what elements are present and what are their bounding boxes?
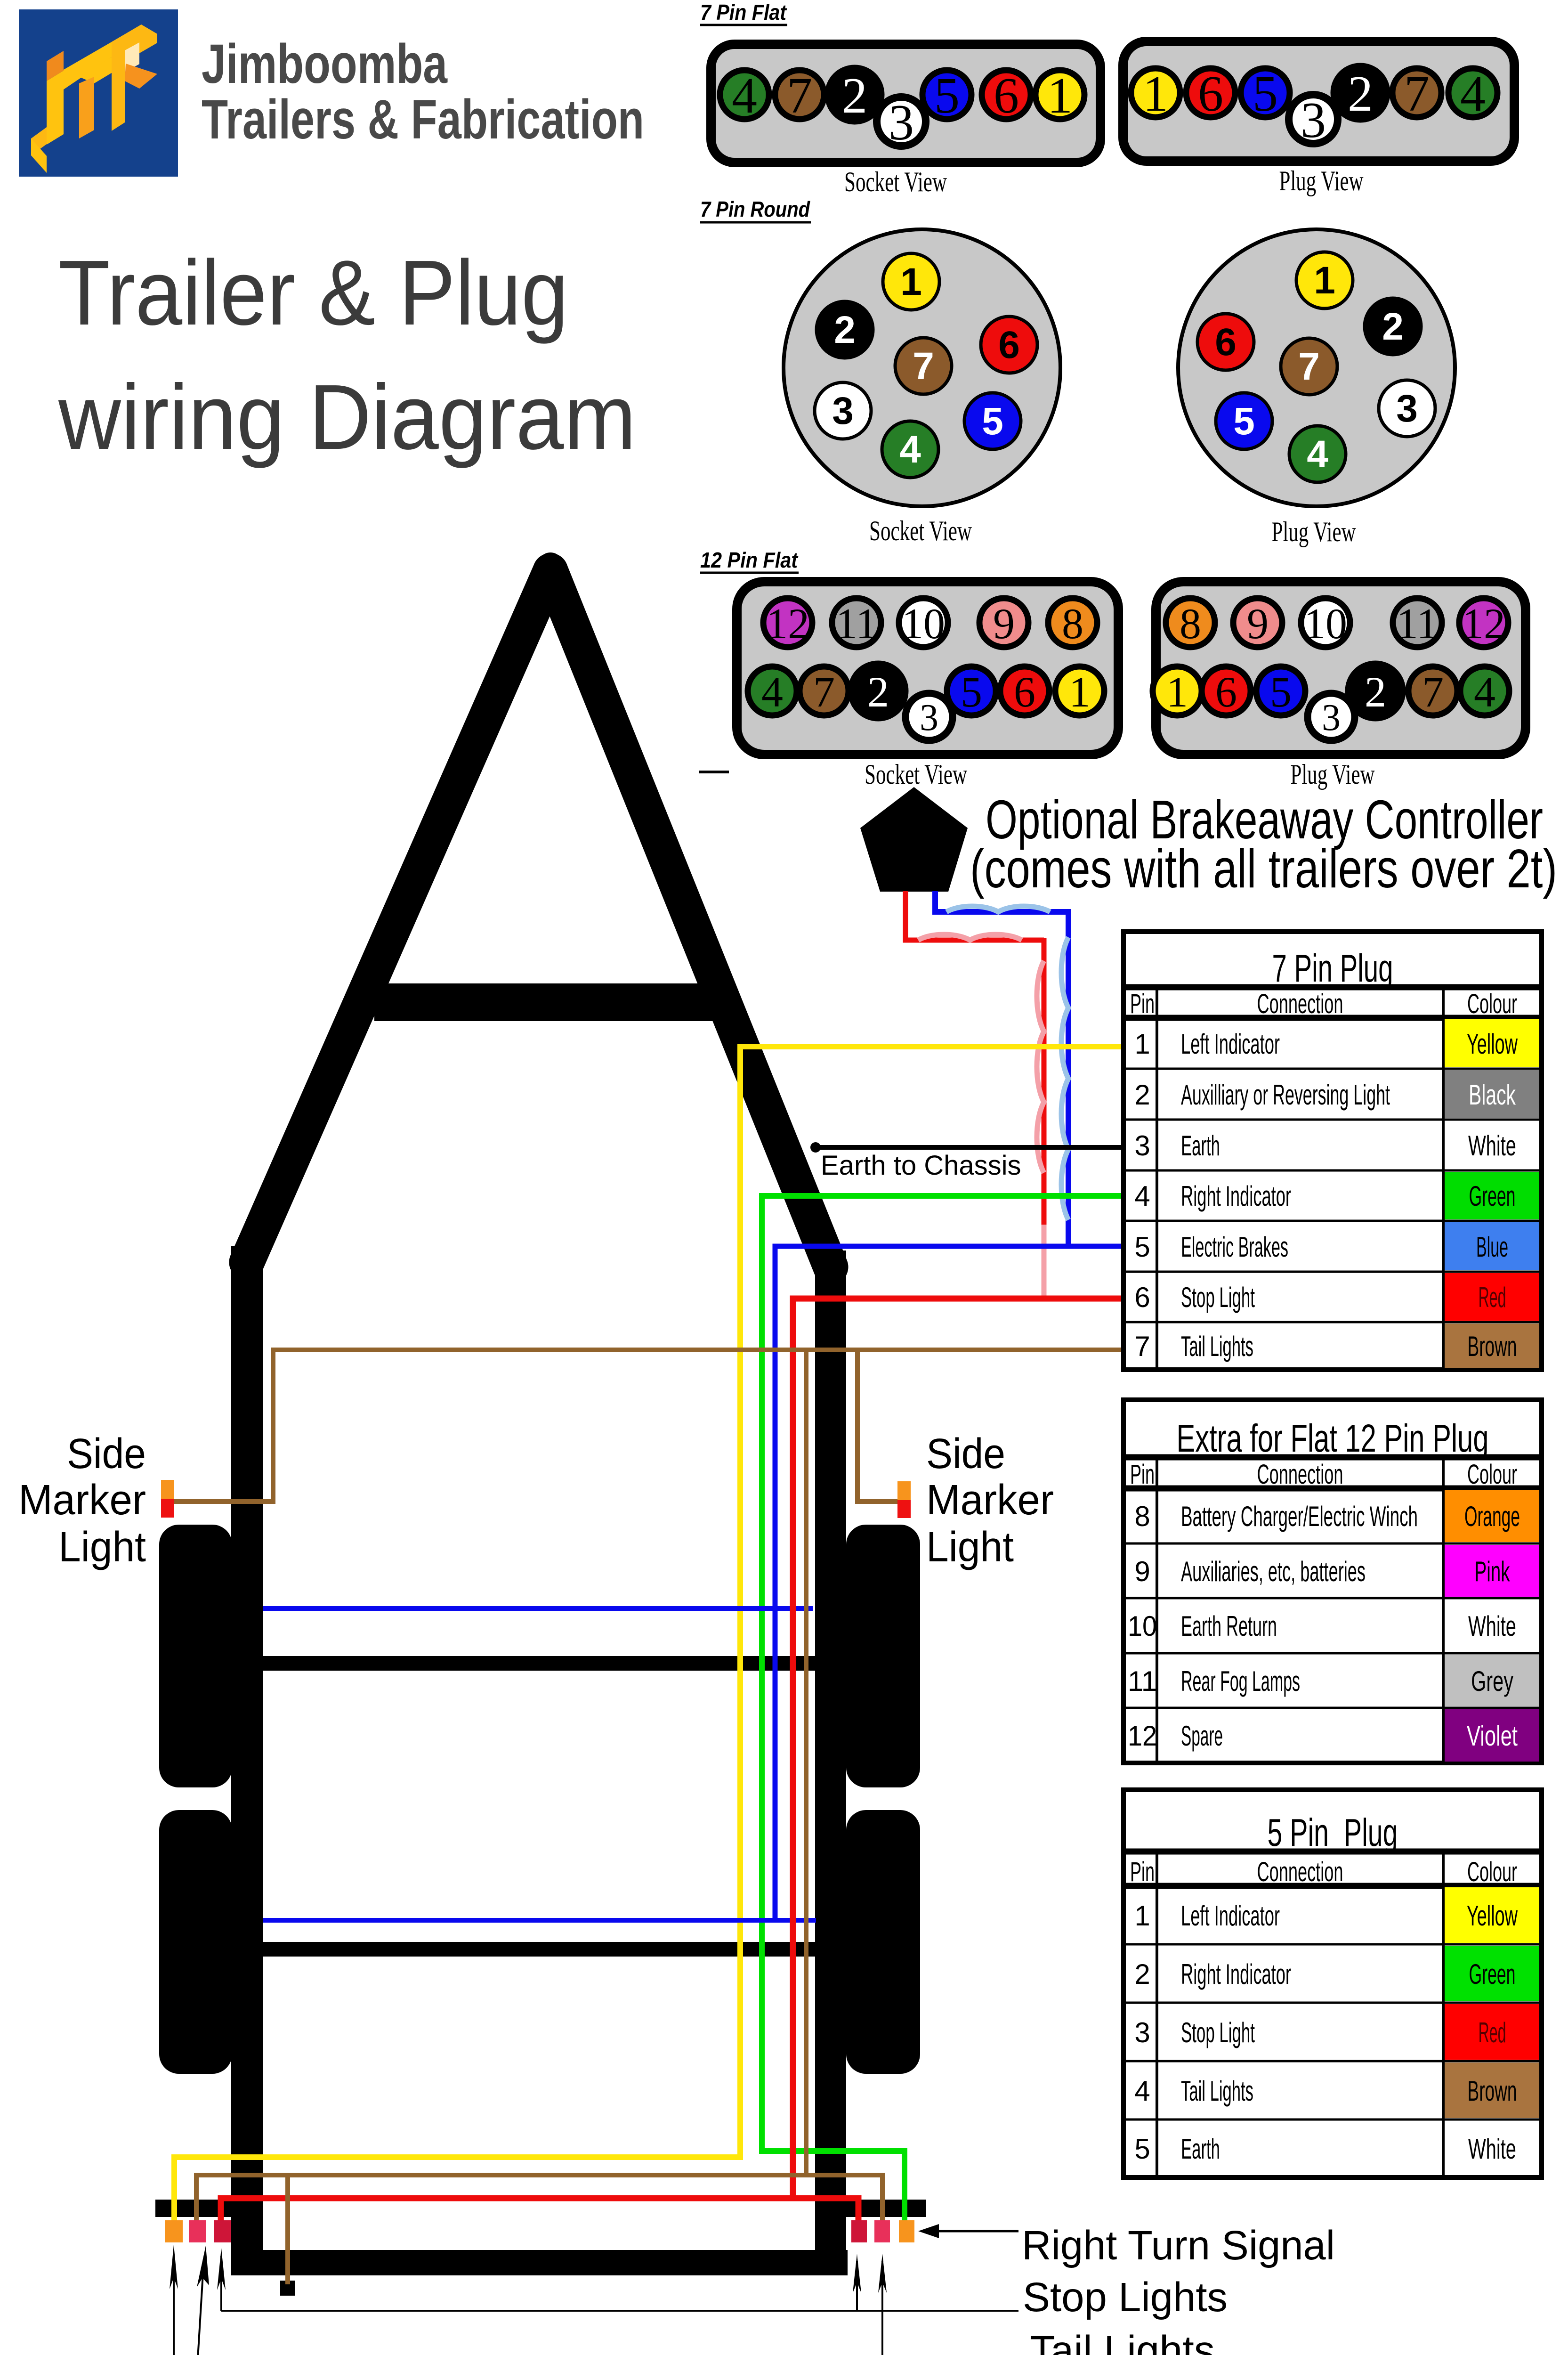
svg-text:3: 3 xyxy=(920,697,938,739)
svg-text:11: 11 xyxy=(836,600,878,648)
svg-text:1: 1 xyxy=(1134,1900,1150,1932)
svg-text:7: 7 xyxy=(1404,66,1430,122)
svg-text:5: 5 xyxy=(1233,400,1255,443)
svg-text:4: 4 xyxy=(1134,2075,1150,2107)
svg-text:2: 2 xyxy=(1365,668,1386,716)
svg-text:10: 10 xyxy=(902,600,945,648)
svg-text:Trailers & Fabrication: Trailers & Fabrication xyxy=(202,89,644,151)
svg-text:12: 12 xyxy=(1462,600,1505,648)
svg-text:11: 11 xyxy=(1128,1665,1157,1697)
svg-text:9: 9 xyxy=(1247,600,1269,648)
svg-text:Marker: Marker xyxy=(926,1477,1054,1524)
svg-text:Brown: Brown xyxy=(1468,1331,1517,1362)
svg-text:12: 12 xyxy=(766,600,809,648)
svg-text:2: 2 xyxy=(867,668,889,716)
svg-text:Light: Light xyxy=(926,1524,1014,1571)
svg-text:2: 2 xyxy=(1134,1079,1150,1111)
svg-text:3: 3 xyxy=(1396,387,1418,430)
svg-text:7: 7 xyxy=(813,668,835,716)
svg-text:Tail Lights: Tail Lights xyxy=(1181,1331,1253,1362)
svg-text:5: 5 xyxy=(1253,66,1278,122)
svg-text:6: 6 xyxy=(1215,668,1237,716)
svg-text:7: 7 xyxy=(1134,1331,1150,1362)
svg-text:7: 7 xyxy=(787,68,812,124)
svg-text:Socket View: Socket View xyxy=(844,166,947,197)
svg-text:White: White xyxy=(1468,1610,1516,1642)
svg-text:5: 5 xyxy=(1134,1231,1150,1263)
svg-text:Battery Charger/Electric Winch: Battery Charger/Electric Winch xyxy=(1181,1501,1418,1532)
svg-text:Auxiliaries, etc, batteries: Auxiliaries, etc, batteries xyxy=(1181,1556,1366,1587)
svg-text:Colour: Colour xyxy=(1467,1857,1517,1887)
svg-text:3: 3 xyxy=(1134,1130,1150,1161)
svg-text:12 Pin Flat: 12 Pin Flat xyxy=(700,548,799,572)
svg-text:1: 1 xyxy=(1134,1028,1150,1060)
svg-text:Plug View: Plug View xyxy=(1291,759,1375,790)
svg-text:Right Indicator: Right Indicator xyxy=(1181,1180,1291,1212)
svg-text:Trailer & Plug: Trailer & Plug xyxy=(58,241,568,344)
svg-text:Orange: Orange xyxy=(1464,1501,1520,1532)
svg-text:Rear Fog Lamps: Rear Fog Lamps xyxy=(1181,1665,1300,1697)
svg-text:Pin: Pin xyxy=(1130,989,1155,1019)
svg-text:4: 4 xyxy=(732,68,757,124)
svg-text:Left Indicator: Left Indicator xyxy=(1181,1900,1280,1932)
svg-text:Pin: Pin xyxy=(1130,1857,1155,1887)
svg-text:Connection: Connection xyxy=(1257,989,1343,1019)
svg-text:8: 8 xyxy=(1180,600,1201,648)
svg-text:2: 2 xyxy=(1348,66,1373,122)
svg-text:4: 4 xyxy=(1474,668,1495,716)
svg-text:Plug View: Plug View xyxy=(1279,165,1364,196)
svg-text:1: 1 xyxy=(1047,68,1073,124)
svg-text:2: 2 xyxy=(842,68,867,124)
svg-text:3: 3 xyxy=(889,95,914,151)
svg-text:8: 8 xyxy=(1134,1501,1150,1532)
svg-text:Socket View: Socket View xyxy=(865,759,967,790)
svg-text:6: 6 xyxy=(994,68,1019,124)
svg-text:Right Indicator: Right Indicator xyxy=(1181,1958,1291,1990)
svg-text:1: 1 xyxy=(1069,668,1091,716)
svg-text:7: 7 xyxy=(1422,668,1444,716)
svg-text:White: White xyxy=(1468,2133,1516,2165)
svg-text:Yellow: Yellow xyxy=(1467,1028,1518,1060)
svg-text:5: 5 xyxy=(1134,2133,1150,2165)
svg-text:Colour: Colour xyxy=(1467,1459,1517,1490)
svg-text:5 Pin Plug: 5 Pin Plug xyxy=(1268,1811,1398,1854)
svg-text:4: 4 xyxy=(761,668,783,716)
svg-text:10: 10 xyxy=(1128,1610,1157,1642)
svg-text:Brown: Brown xyxy=(1468,2075,1517,2107)
svg-text:3: 3 xyxy=(1301,92,1326,148)
svg-text:Grey: Grey xyxy=(1471,1665,1513,1697)
svg-text:Light: Light xyxy=(58,1524,146,1571)
svg-text:5: 5 xyxy=(982,400,1003,443)
svg-text:wiring Diagram: wiring Diagram xyxy=(58,365,636,469)
svg-text:6: 6 xyxy=(1014,668,1035,716)
svg-text:Green: Green xyxy=(1469,1958,1516,1990)
svg-text:7: 7 xyxy=(913,345,934,388)
svg-text:Earth: Earth xyxy=(1181,2133,1220,2165)
svg-text:7: 7 xyxy=(1298,345,1320,388)
svg-text:Connection: Connection xyxy=(1257,1459,1343,1490)
svg-text:4: 4 xyxy=(1307,433,1328,476)
svg-text:White: White xyxy=(1468,1130,1516,1161)
svg-text:Earth to Chassis: Earth to Chassis xyxy=(821,1150,1021,1181)
svg-text:6: 6 xyxy=(1215,321,1237,364)
svg-text:Jimboomba: Jimboomba xyxy=(202,33,448,95)
svg-text:(comes with all trailers over: (comes with all trailers over 2t) xyxy=(970,838,1557,899)
svg-text:9: 9 xyxy=(993,600,1015,648)
svg-text:6: 6 xyxy=(998,324,1020,366)
svg-text:Blue: Blue xyxy=(1476,1231,1508,1263)
svg-text:3: 3 xyxy=(832,390,854,432)
svg-text:5: 5 xyxy=(1270,668,1292,716)
svg-text:9: 9 xyxy=(1134,1556,1150,1587)
svg-text:Connection: Connection xyxy=(1257,1857,1343,1887)
svg-text:Extra for Flat 12 Pin Plug: Extra for Flat 12 Pin Plug xyxy=(1177,1416,1489,1460)
svg-text:Stop Light: Stop Light xyxy=(1181,2017,1255,2048)
svg-text:7 Pin Flat: 7 Pin Flat xyxy=(700,0,787,24)
svg-text:12: 12 xyxy=(1128,1720,1157,1752)
svg-text:Pink: Pink xyxy=(1475,1556,1511,1587)
svg-text:1: 1 xyxy=(1166,668,1188,716)
svg-text:Violet: Violet xyxy=(1467,1720,1518,1752)
svg-text:Tail Lights: Tail Lights xyxy=(1030,2328,1215,2355)
svg-text:Electric Brakes: Electric Brakes xyxy=(1181,1231,1288,1263)
svg-text:Black: Black xyxy=(1469,1079,1516,1111)
svg-text:Spare: Spare xyxy=(1181,1720,1223,1752)
svg-text:4: 4 xyxy=(899,428,921,471)
svg-text:Stop Lights: Stop Lights xyxy=(1023,2274,1228,2320)
svg-text:2: 2 xyxy=(1134,1958,1150,1990)
svg-text:Earth: Earth xyxy=(1181,1130,1220,1161)
svg-text:Auxilliary or Reversing Light: Auxilliary or Reversing Light xyxy=(1181,1079,1390,1111)
svg-text:Side: Side xyxy=(67,1430,146,1478)
svg-text:Pin: Pin xyxy=(1130,1459,1155,1490)
svg-text:7 Pin Plug: 7 Pin Plug xyxy=(1272,946,1393,990)
svg-text:4: 4 xyxy=(1460,66,1486,122)
svg-text:Earth Return: Earth Return xyxy=(1181,1610,1277,1642)
svg-text:6: 6 xyxy=(1198,66,1223,122)
svg-text:Marker: Marker xyxy=(18,1477,146,1524)
svg-text:11: 11 xyxy=(1397,600,1439,648)
svg-text:1: 1 xyxy=(1143,66,1168,122)
svg-text:3: 3 xyxy=(1322,697,1341,739)
svg-text:7 Pin Round: 7 Pin Round xyxy=(700,197,810,221)
svg-text:4: 4 xyxy=(1134,1180,1150,1212)
svg-text:2: 2 xyxy=(1382,305,1404,348)
svg-text:5: 5 xyxy=(934,68,960,124)
svg-text:Plug View: Plug View xyxy=(1272,516,1356,547)
svg-text:Red: Red xyxy=(1479,1282,1506,1313)
svg-text:Stop Light: Stop Light xyxy=(1181,1282,1255,1313)
svg-text:5: 5 xyxy=(961,668,982,716)
svg-text:3: 3 xyxy=(1134,2017,1150,2048)
svg-text:6: 6 xyxy=(1134,1282,1150,1313)
svg-text:8: 8 xyxy=(1062,600,1083,648)
svg-text:Yellow: Yellow xyxy=(1467,1900,1518,1932)
svg-text:Socket View: Socket View xyxy=(869,515,972,546)
svg-text:1: 1 xyxy=(1314,259,1335,302)
svg-text:Side: Side xyxy=(926,1430,1005,1478)
svg-text:Left Indicator: Left Indicator xyxy=(1181,1028,1280,1060)
svg-text:Right Turn Signal: Right Turn Signal xyxy=(1022,2223,1335,2268)
svg-text:10: 10 xyxy=(1304,600,1347,648)
svg-text:Red: Red xyxy=(1479,2017,1506,2048)
svg-text:Green: Green xyxy=(1469,1180,1516,1212)
svg-text:1: 1 xyxy=(900,260,922,303)
svg-text:Colour: Colour xyxy=(1467,989,1517,1019)
svg-text:2: 2 xyxy=(834,309,856,351)
svg-text:Tail Lights: Tail Lights xyxy=(1181,2075,1253,2107)
